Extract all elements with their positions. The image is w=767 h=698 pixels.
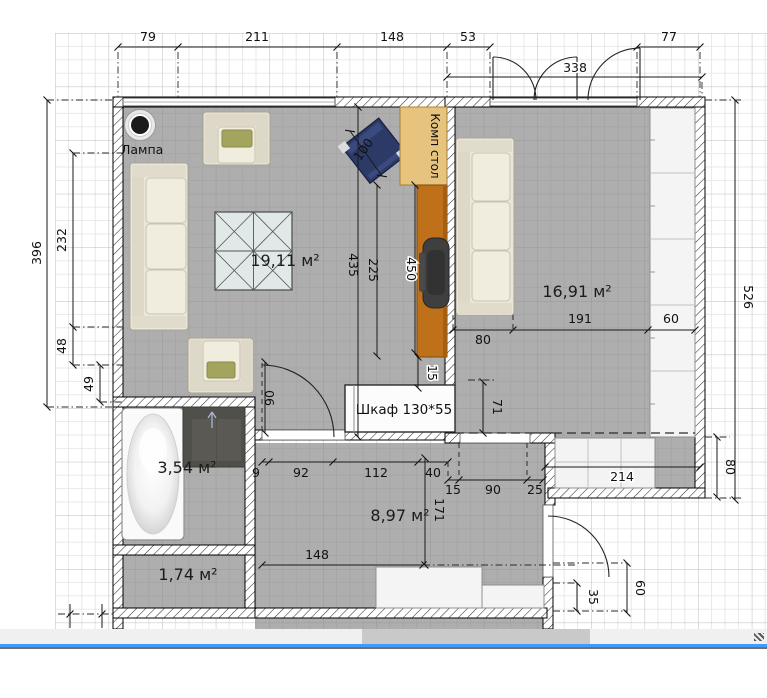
wall-bath-top[interactable] <box>113 397 255 407</box>
dim-bedroom-214: 214 <box>610 469 634 484</box>
room-below-sliver <box>255 618 543 629</box>
dim-hall-9: 9 <box>252 465 260 480</box>
dim-top-211: 211 <box>245 29 269 44</box>
dim-left-49: 49 <box>81 376 96 392</box>
dim-left-396: 396 <box>29 241 44 265</box>
wall-bath-bottom[interactable] <box>113 545 255 555</box>
dim-hall-92: 92 <box>293 465 309 480</box>
dim-bedroom-60: 60 <box>663 311 679 326</box>
wardrobe-label: Шкаф 130*55 <box>356 402 452 418</box>
armchair-top[interactable] <box>203 112 270 165</box>
computer-desk-label: Комп стол <box>428 113 442 178</box>
dim-top-338: 338 <box>563 60 587 75</box>
wall-toilet-right[interactable] <box>245 555 255 608</box>
dim-right-35: 35 <box>586 589 601 605</box>
door-opening-hall[interactable] <box>460 433 530 443</box>
closet-bedroom[interactable] <box>650 108 695 437</box>
cushion-green-top <box>222 130 252 147</box>
armchair-bottom[interactable] <box>188 338 253 393</box>
wall-kitchen-bottom[interactable] <box>548 488 705 498</box>
dim-bedroom-191: 191 <box>568 311 592 326</box>
room-label-bathroom: 3,54 м² <box>157 458 216 477</box>
dim-top-53: 53 <box>460 29 476 44</box>
dim-hall-90: 90 <box>485 482 501 497</box>
window-bottom-border <box>0 647 767 649</box>
plan-canvas[interactable]: 79 211 148 53 338 77 396 232 48 49 526 8… <box>0 0 767 630</box>
lamp-bulb <box>131 116 149 134</box>
dim-right-60: 60 <box>633 580 648 596</box>
dim-bedroom-71: 71 <box>490 399 505 415</box>
dim-top-79: 79 <box>140 29 156 44</box>
dim-hall-171: 171 <box>432 498 447 522</box>
scrollbar-thumb[interactable] <box>362 629 590 644</box>
lamp-label: Лампа <box>121 142 163 157</box>
dim-right-80: 80 <box>723 459 738 475</box>
dim-hall-25: 25 <box>527 482 543 497</box>
dim-living-15: 15 <box>425 365 440 381</box>
dim-right-526: 526 <box>741 285 756 309</box>
dim-living-225: 225 <box>366 258 381 282</box>
hall-cabinet-large[interactable] <box>376 567 482 608</box>
dim-hall-40: 40 <box>425 465 441 480</box>
scrollbar-grip-icon <box>754 633 764 641</box>
dim-living-435: 435 <box>346 253 361 277</box>
kitchen-cabinets[interactable] <box>555 438 655 488</box>
wall-right[interactable] <box>695 107 705 498</box>
wall-toilet-bottom[interactable] <box>113 608 255 618</box>
dim-hall-112: 112 <box>364 465 388 480</box>
sofa-bedroom[interactable] <box>456 138 514 315</box>
wall-hall-bottom[interactable] <box>255 608 547 618</box>
dim-top-77: 77 <box>661 29 677 44</box>
room-label-toilet: 1,74 м² <box>158 565 217 584</box>
door-opening-living[interactable] <box>262 430 345 440</box>
hall-cabinet-small[interactable] <box>482 585 544 608</box>
dim-left-232: 232 <box>54 228 69 252</box>
horizontal-scrollbar[interactable] <box>0 629 767 644</box>
cushion-green-bottom <box>207 362 235 378</box>
dim-left-48: 48 <box>54 338 69 354</box>
room-label-bedroom: 16,91 м² <box>542 282 611 301</box>
floor-plan-editor: 79 211 148 53 338 77 396 232 48 49 526 8… <box>0 0 767 698</box>
room-label-living: 19,11 м² <box>250 251 319 270</box>
dim-living-450: 450 <box>404 257 419 281</box>
dim-hall-148: 148 <box>305 547 329 562</box>
dim-bedroom-80: 80 <box>475 332 491 347</box>
room-label-hallway: 8,97 м² <box>370 506 429 525</box>
office-chair[interactable] <box>419 238 449 308</box>
dim-hall-15: 15 <box>445 482 461 497</box>
wall-bath-right[interactable] <box>245 407 255 555</box>
dim-top-148: 148 <box>380 29 404 44</box>
sofa-living[interactable] <box>130 163 188 330</box>
dim-living-90: 90 <box>262 390 277 406</box>
